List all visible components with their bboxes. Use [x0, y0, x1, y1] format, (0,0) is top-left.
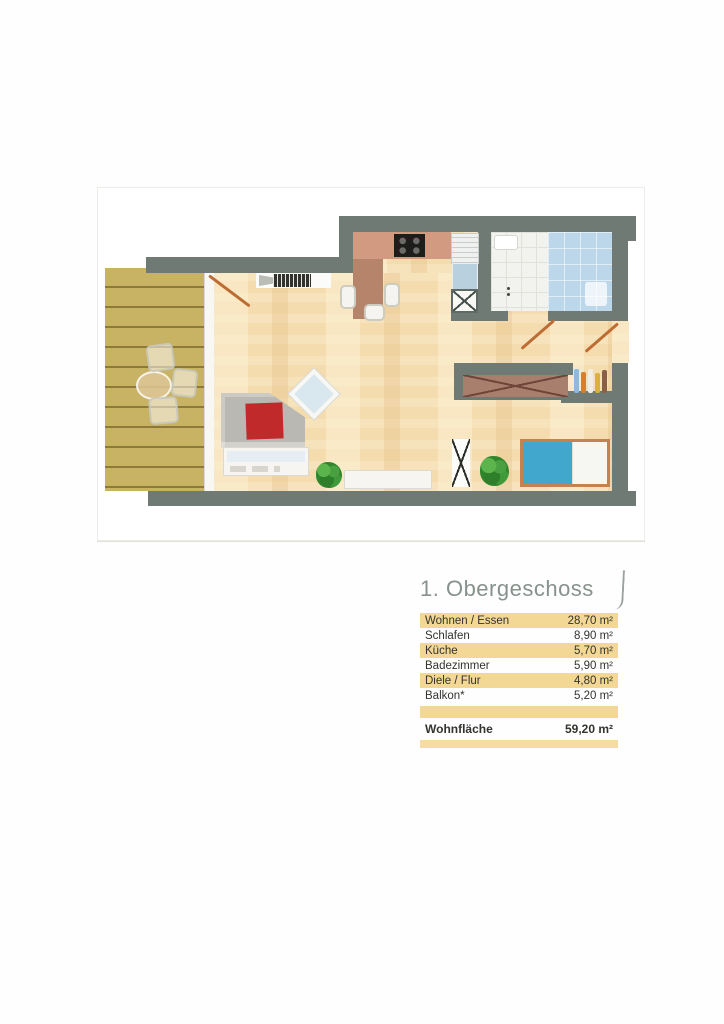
coat-item	[574, 369, 579, 393]
room-label: Wohnen / Essen	[425, 615, 509, 627]
table-row: Balkon* 5,20 m²	[420, 688, 618, 703]
sofa-cushion	[245, 402, 283, 439]
table-row: Schlafen 8,90 m²	[420, 628, 618, 643]
area-table: 1. Obergeschoss Wohnen / Essen 28,70 m² …	[420, 576, 618, 748]
room-area: 8,90 m²	[574, 630, 613, 642]
wall-top	[339, 216, 636, 232]
utility-shaft	[451, 289, 478, 313]
house-plant	[316, 462, 342, 488]
spacer-band	[420, 706, 618, 718]
built-in-wardrobe	[463, 375, 568, 397]
bed	[520, 439, 610, 487]
total-label: Wohnfläche	[425, 722, 493, 736]
dishwasher	[451, 233, 479, 264]
scanned-floorplan-page: 1. Obergeschoss Wohnen / Essen 28,70 m² …	[0, 0, 724, 1024]
floor-plan	[97, 187, 645, 541]
page-title: 1. Obergeschoss	[420, 576, 618, 602]
coat-item	[588, 369, 593, 393]
dining-chair	[384, 283, 400, 307]
tv-sideboard	[344, 470, 432, 489]
lowboard	[223, 447, 309, 476]
dining-chair	[340, 285, 356, 309]
terrace-chair	[148, 396, 179, 425]
coat-item	[581, 372, 586, 393]
kitchen-sink	[452, 263, 478, 292]
pen-mark	[613, 570, 625, 610]
total-row: Wohnfläche 59,20 m²	[420, 721, 618, 737]
table-row: Badezimmer 5,90 m²	[420, 658, 618, 673]
wall-bath-bottom-right	[548, 311, 618, 321]
wall-right-lower	[612, 363, 628, 506]
area-rows: Wohnen / Essen 28,70 m² Schlafen 8,90 m²…	[420, 613, 618, 703]
room-area: 28,70 m²	[568, 615, 613, 627]
wall-wardrobe-left	[454, 363, 463, 400]
wall-bath-left	[478, 232, 491, 321]
house-plant	[480, 456, 509, 486]
room-label: Balkon*	[425, 690, 465, 702]
lowboard-drawers	[230, 466, 280, 472]
bed-pillow	[572, 442, 607, 484]
table-row: Wohnen / Essen 28,70 m²	[420, 613, 618, 628]
wall-hall-bottom	[454, 363, 573, 375]
footer-band	[420, 740, 618, 748]
coat-item	[595, 373, 600, 393]
wall-top-left	[146, 257, 353, 273]
lowboard-top	[227, 451, 305, 462]
room-label: Schlafen	[425, 630, 470, 642]
radiator	[273, 274, 311, 287]
wall-bottom	[148, 491, 636, 506]
cooktop	[394, 234, 425, 257]
room-label: Küche	[425, 645, 458, 657]
room-area: 5,20 m²	[574, 690, 613, 702]
coat-niche	[574, 368, 610, 393]
table-row: Küche 5,70 m²	[420, 643, 618, 658]
wardrobe-front-line	[463, 397, 568, 400]
dining-chair	[364, 304, 385, 321]
bed-blanket	[523, 442, 572, 484]
coat-item	[602, 370, 607, 393]
terrace-chair	[145, 342, 175, 372]
room-area: 5,90 m²	[574, 660, 613, 672]
total-area: 59,20 m²	[565, 722, 613, 736]
clothes-rack	[452, 439, 470, 487]
table-row: Diele / Flur 4,80 m²	[420, 673, 618, 688]
room-label: Diele / Flur	[425, 675, 481, 687]
fixture-dots	[507, 287, 510, 290]
washbasin	[494, 235, 518, 250]
wall-right-upper	[612, 216, 628, 321]
room-label: Badezimmer	[425, 660, 490, 672]
room-area: 5,70 m²	[574, 645, 613, 657]
room-area: 4,80 m²	[574, 675, 613, 687]
terrace-chair	[171, 368, 199, 398]
shower-tray	[585, 282, 607, 306]
